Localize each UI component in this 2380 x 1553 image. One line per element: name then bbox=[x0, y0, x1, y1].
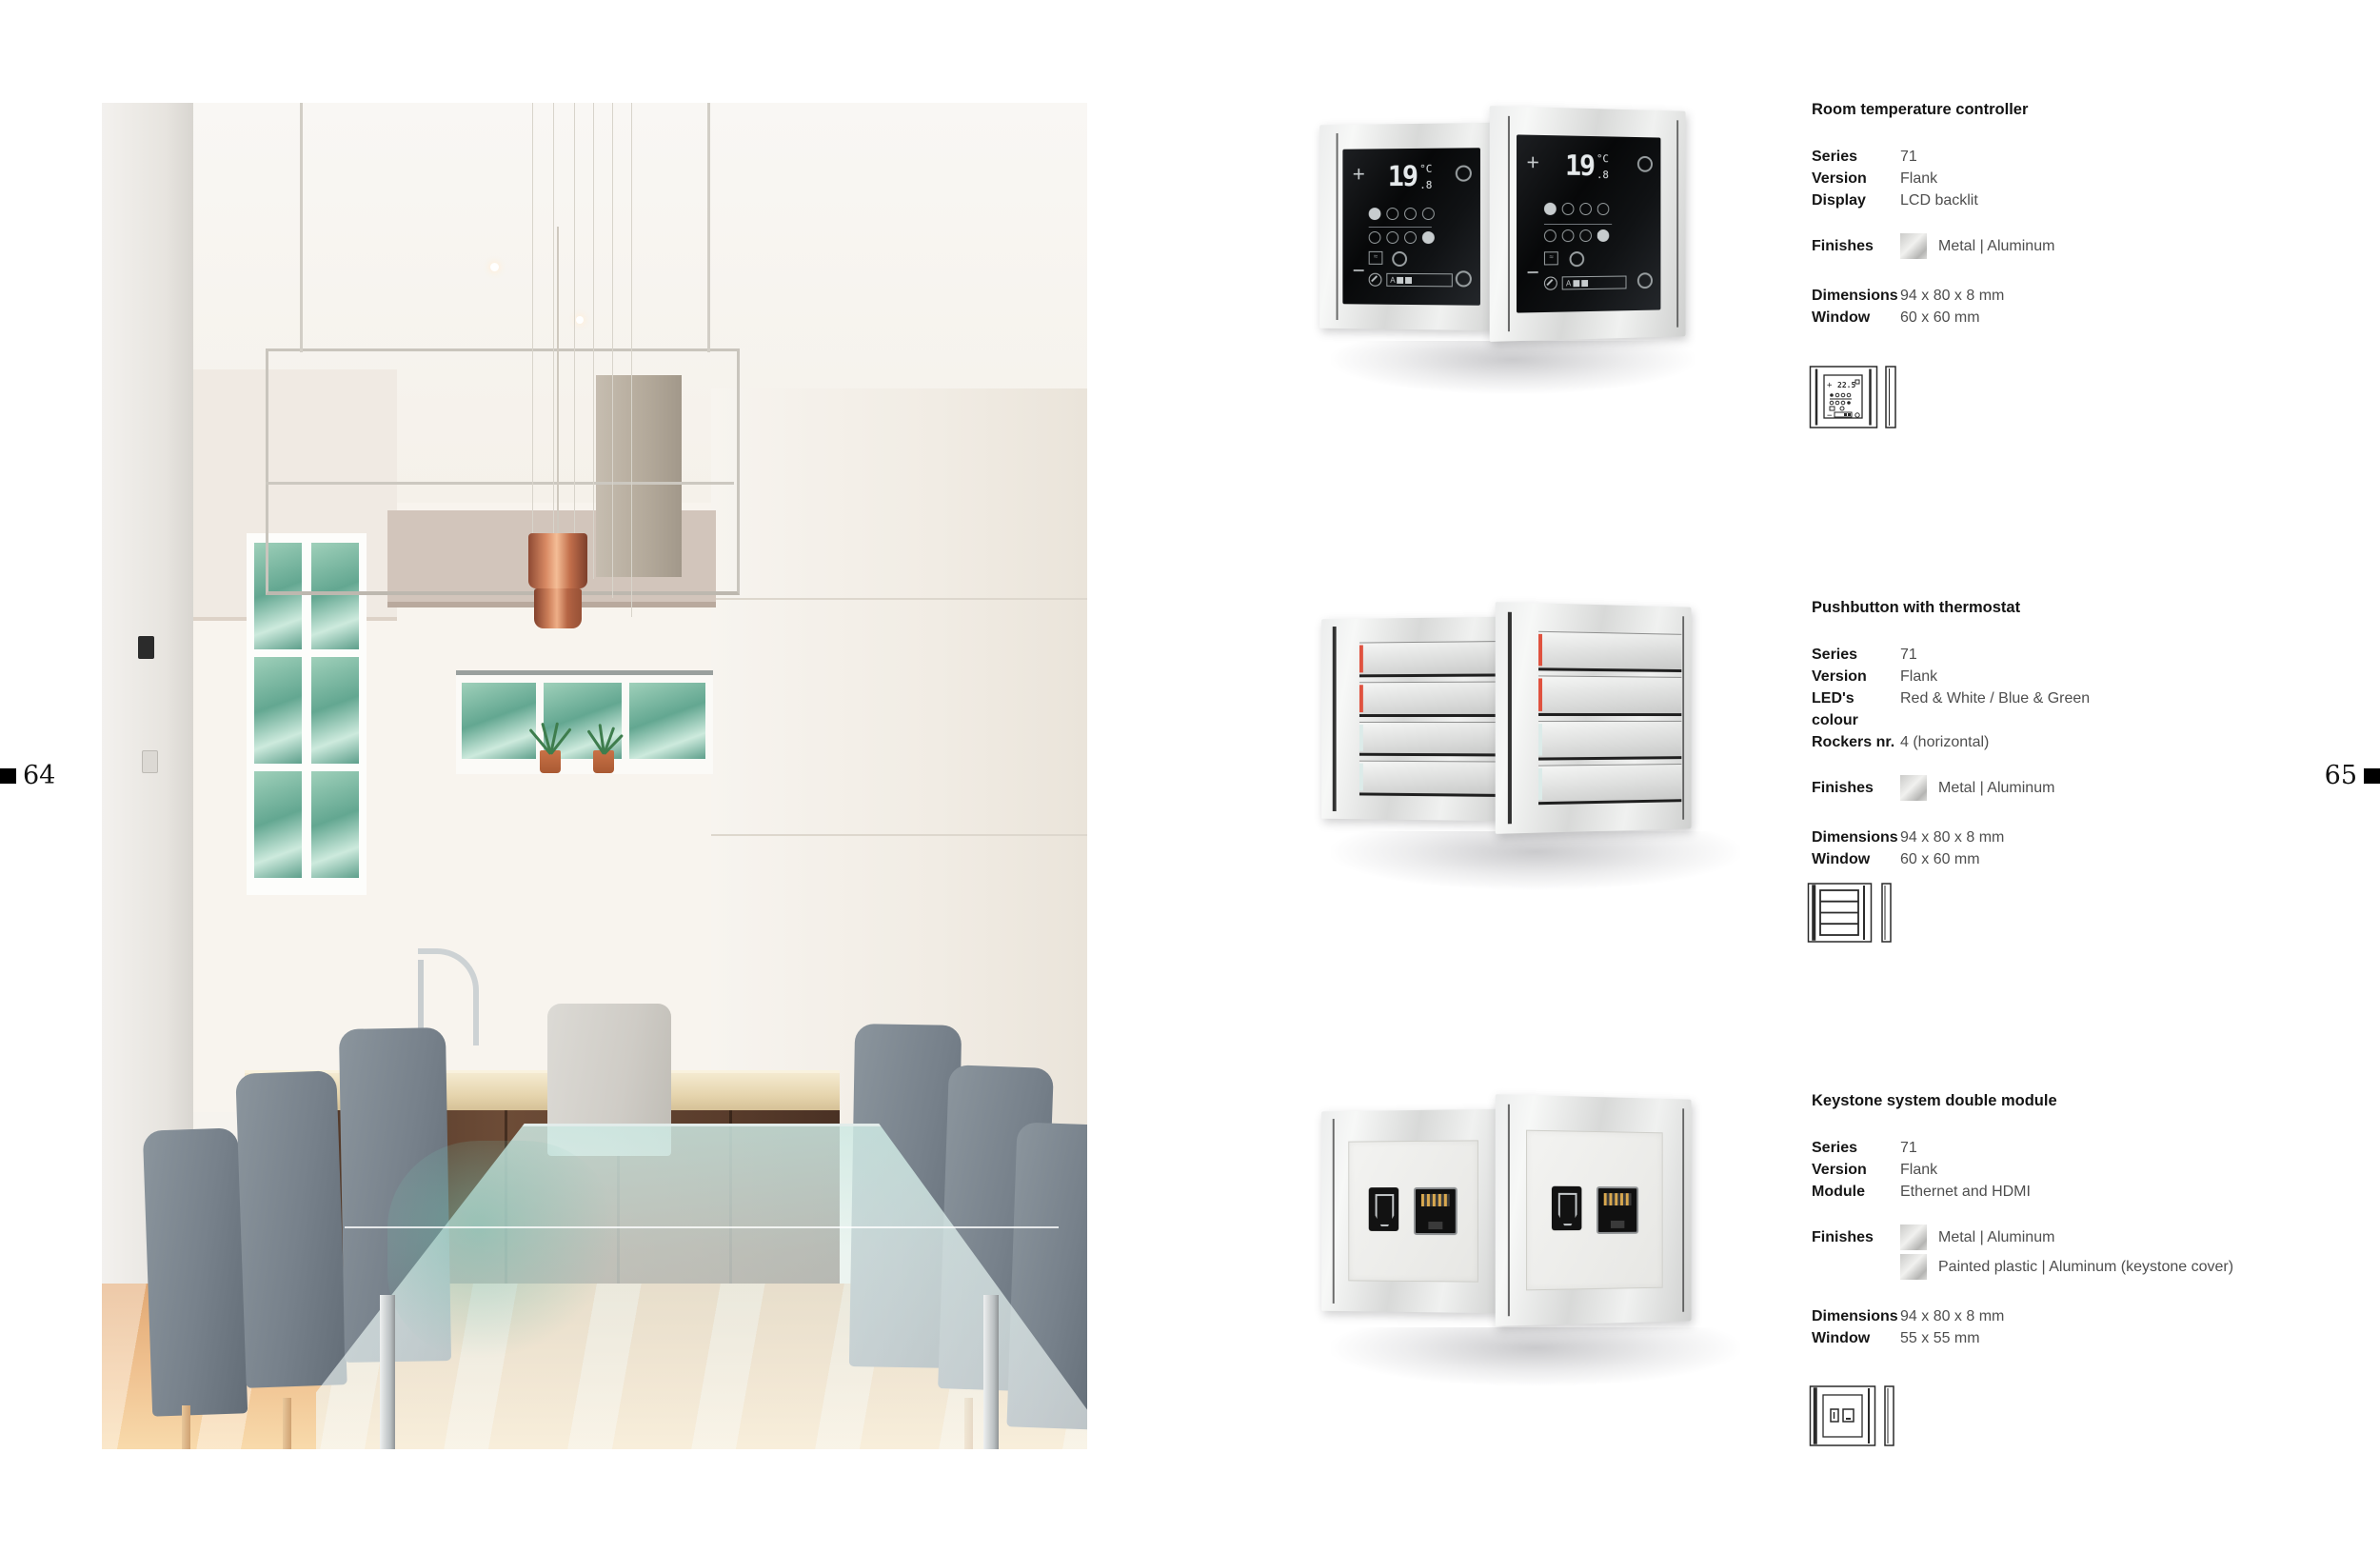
window-value: 60 x 60 mm bbox=[1900, 848, 1980, 870]
mode-dot bbox=[1422, 208, 1435, 220]
icon-heat-glyph bbox=[1830, 407, 1835, 410]
pushbutton-panel-left bbox=[1321, 617, 1506, 822]
icon-dot bbox=[1847, 401, 1851, 405]
table-leg bbox=[983, 1295, 999, 1449]
dining-chair bbox=[143, 1127, 248, 1416]
steel-frame-rail bbox=[266, 482, 734, 485]
led-stripe-red bbox=[1359, 685, 1363, 711]
spec-row: Window 60 x 60 mm bbox=[1812, 848, 2380, 870]
finish-row: Finishes Metal | Aluminum bbox=[1812, 1224, 2380, 1250]
spec-row: Window 55 x 55 mm bbox=[1812, 1327, 2380, 1349]
icon-dot bbox=[1830, 401, 1834, 405]
finish-name: Metal | Aluminum bbox=[1938, 235, 2054, 257]
ceiling-spotlight bbox=[490, 263, 499, 271]
spec-block-pushbutton: Pushbutton with thermostat Series 71 Ver… bbox=[1812, 597, 2380, 870]
fan-level-block bbox=[1581, 280, 1588, 287]
finish-row: Painted plastic | Aluminum (keystone cov… bbox=[1812, 1254, 2380, 1280]
window-pane bbox=[254, 771, 302, 878]
thermostat-front-view-icon: + 22.5 − bbox=[1809, 364, 1904, 430]
led-stripe-cool bbox=[1359, 764, 1363, 790]
mode-dots-row bbox=[1544, 203, 1609, 215]
kitchen-photo bbox=[102, 103, 1087, 1449]
temperature-unit: °C bbox=[1419, 162, 1432, 174]
port-group bbox=[1527, 1186, 1662, 1235]
spec-rows: Series 71 Version Flank Module Ethernet … bbox=[1812, 1137, 2380, 1203]
pushbutton-panel-right bbox=[1496, 602, 1692, 834]
mode-dot bbox=[1386, 231, 1398, 244]
mode-dot bbox=[1369, 208, 1381, 220]
flank-groove bbox=[1336, 133, 1338, 321]
rocker-group bbox=[1538, 630, 1682, 805]
rocker-button bbox=[1538, 764, 1682, 806]
metal-finish-swatch bbox=[1900, 775, 1927, 801]
mode-dot bbox=[1544, 229, 1557, 242]
fan-slider: A bbox=[1369, 273, 1453, 288]
ethernet-clip-notch bbox=[1428, 1222, 1442, 1229]
mode-dot bbox=[1562, 203, 1575, 215]
ethernet-pins bbox=[1604, 1193, 1632, 1205]
pendant-wire bbox=[553, 103, 554, 566]
spec-row: LED's colour Red & White / Blue & Green bbox=[1812, 687, 2380, 731]
spec-block-thermostat: Room temperature controller Series 71 Ve… bbox=[1812, 99, 2380, 329]
spec-value: LCD backlit bbox=[1900, 189, 1978, 211]
fan-level-bar: A bbox=[1386, 273, 1452, 288]
rocker-button bbox=[1359, 761, 1497, 797]
wall-switch-dark bbox=[138, 636, 154, 659]
display-separator bbox=[1369, 227, 1432, 228]
mode-dot bbox=[1597, 203, 1610, 215]
hdmi-port bbox=[1369, 1187, 1398, 1231]
spec-label: Version bbox=[1812, 1159, 1900, 1181]
hdmi-connector-outline bbox=[1558, 1193, 1577, 1225]
mode-dot bbox=[1404, 208, 1417, 220]
spec-block-keystone: Keystone system double module Series 71 … bbox=[1812, 1090, 2380, 1349]
thermostat-panel-right: + 19 °C .8 ≈ bbox=[1490, 106, 1686, 342]
window-label: Window bbox=[1812, 307, 1900, 329]
temperature-fraction: .8 bbox=[1419, 179, 1432, 191]
pushbutton-product-photo bbox=[1318, 603, 1765, 917]
port-group bbox=[1350, 1187, 1478, 1235]
icon-slider-block bbox=[1848, 413, 1851, 416]
flank-groove bbox=[1682, 616, 1684, 820]
clock-icon bbox=[1570, 251, 1585, 267]
rocker-button bbox=[1359, 721, 1497, 756]
mode-dots-row bbox=[1369, 208, 1435, 220]
potted-plant bbox=[585, 705, 624, 773]
flank-groove bbox=[1508, 1104, 1510, 1317]
fan-level-block bbox=[1405, 277, 1412, 284]
icon-dot bbox=[1847, 393, 1851, 397]
pendant-rod bbox=[557, 227, 559, 537]
spec-value: 4 (horizontal) bbox=[1900, 731, 1989, 753]
product-shadow bbox=[1331, 831, 1740, 890]
spec-label: Series bbox=[1812, 644, 1900, 666]
dimensions-section: Dimensions 94 x 80 x 8 mm Window 60 x 60… bbox=[1812, 285, 2380, 329]
dimensions-value: 94 x 80 x 8 mm bbox=[1900, 285, 2004, 307]
thermostat-glass-display: + 19 °C .8 ≈ bbox=[1517, 134, 1661, 312]
product-title: Keystone system double module bbox=[1812, 1090, 2380, 1112]
window-pane bbox=[311, 657, 359, 764]
spec-row: Module Ethernet and HDMI bbox=[1812, 1181, 2380, 1203]
fan-slider: A bbox=[1544, 276, 1627, 290]
spec-row: Dimensions 94 x 80 x 8 mm bbox=[1812, 285, 2380, 307]
icon-side-profile bbox=[1886, 367, 1895, 428]
product-title: Pushbutton with thermostat bbox=[1812, 597, 2380, 619]
spec-value: 71 bbox=[1900, 146, 1917, 168]
rocker-button bbox=[1538, 630, 1682, 672]
finishes-label: Finishes bbox=[1812, 777, 1900, 799]
product-shadow bbox=[1331, 1327, 1740, 1386]
painted-plastic-finish-swatch bbox=[1900, 1254, 1927, 1280]
frame-drop-rod bbox=[707, 103, 710, 352]
rocker-button bbox=[1538, 675, 1682, 715]
icon-clock-glyph bbox=[1840, 407, 1844, 410]
round-button bbox=[1637, 272, 1653, 289]
temperature-unit-frac: °C .8 bbox=[1597, 152, 1609, 181]
led-stripe-red bbox=[1538, 633, 1542, 666]
temperature-readout: 19 °C .8 bbox=[1565, 151, 1609, 181]
icon-dot bbox=[1841, 393, 1845, 397]
table-reflection bbox=[387, 1141, 616, 1360]
mode-dot bbox=[1386, 208, 1398, 220]
rocker-button bbox=[1538, 720, 1682, 760]
temperature-readout: 19 °C .8 bbox=[1388, 162, 1433, 190]
window-value: 55 x 55 mm bbox=[1900, 1327, 1980, 1349]
finish-name: Painted plastic | Aluminum (keystone cov… bbox=[1938, 1256, 2233, 1278]
mode-dot bbox=[1369, 231, 1381, 244]
hdmi-connector-outline bbox=[1376, 1194, 1395, 1226]
dimensions-label: Dimensions bbox=[1812, 826, 1900, 848]
spec-row: Version Flank bbox=[1812, 168, 2380, 189]
spec-row: Display LCD backlit bbox=[1812, 189, 2380, 211]
potted-plant bbox=[532, 697, 570, 773]
pendant-wire bbox=[612, 103, 613, 598]
suspended-steel-frame bbox=[266, 348, 740, 595]
thermostat-product-photo: + 19 °C .8 ≈ bbox=[1318, 105, 1717, 400]
window-value: 60 x 60 mm bbox=[1900, 307, 1980, 329]
led-stripe-red bbox=[1538, 678, 1542, 710]
spec-row: Dimensions 94 x 80 x 8 mm bbox=[1812, 1305, 2380, 1327]
copper-pendant-lamp-lower bbox=[534, 588, 582, 628]
keystone-product-photo bbox=[1318, 1095, 1765, 1414]
flank-groove bbox=[1508, 611, 1512, 825]
fan-icon bbox=[1544, 277, 1557, 290]
spec-row: Window 60 x 60 mm bbox=[1812, 307, 2380, 329]
spec-label: Version bbox=[1812, 666, 1900, 687]
ethernet-pins bbox=[1421, 1194, 1450, 1206]
fan-level-block bbox=[1398, 277, 1404, 284]
flank-groove bbox=[1682, 1108, 1684, 1312]
led-stripe-cool bbox=[1538, 768, 1542, 801]
clock-icon bbox=[1392, 251, 1407, 267]
icon-ethernet-glyph bbox=[1843, 1409, 1854, 1422]
window-pane bbox=[254, 657, 302, 764]
pushbutton-front-view-icon bbox=[1807, 882, 1897, 945]
finishes-section: Finishes Metal | Aluminum Painted plasti… bbox=[1812, 1224, 2380, 1280]
round-button bbox=[1637, 156, 1653, 172]
pendant-wire bbox=[532, 103, 533, 550]
mode-dot bbox=[1404, 231, 1417, 244]
frame-drop-rod bbox=[300, 103, 303, 352]
dimensions-section: Dimensions 94 x 80 x 8 mm Window 55 x 55… bbox=[1812, 1305, 2380, 1349]
spec-row: Version Flank bbox=[1812, 666, 2380, 687]
window-pane bbox=[462, 683, 536, 759]
ethernet-port bbox=[1414, 1187, 1458, 1235]
keystone-cover-plate bbox=[1526, 1129, 1663, 1290]
plus-button: + bbox=[1353, 161, 1365, 187]
thermostat-panel-left: + 19 °C .8 ≈ bbox=[1319, 123, 1504, 331]
auto-label: A bbox=[1390, 276, 1395, 285]
mode-dot bbox=[1562, 229, 1575, 242]
temperature-unit-frac: °C .8 bbox=[1419, 162, 1432, 190]
spec-value: 71 bbox=[1900, 1137, 1917, 1159]
pendant-wire bbox=[631, 103, 632, 617]
spec-label: Series bbox=[1812, 146, 1900, 168]
icon-side-profile bbox=[1885, 1386, 1894, 1445]
icon-flank-bar bbox=[1815, 1388, 1817, 1443]
window-pane bbox=[629, 683, 705, 759]
led-stripe-red bbox=[1359, 646, 1363, 672]
dimensions-section: Dimensions 94 x 80 x 8 mm Window 60 x 60… bbox=[1812, 826, 2380, 870]
spec-value: Flank bbox=[1900, 666, 1937, 687]
window-label: Window bbox=[1812, 1327, 1900, 1349]
round-button bbox=[1456, 270, 1472, 287]
flank-groove bbox=[1676, 120, 1678, 328]
flank-groove bbox=[1333, 627, 1337, 810]
finish-row: Finishes Metal | Aluminum bbox=[1812, 233, 2380, 259]
spec-label: Module bbox=[1812, 1181, 1900, 1203]
mode-dots-row bbox=[1544, 229, 1609, 241]
icon-plus: + bbox=[1827, 381, 1833, 390]
heating-icon: ≈ bbox=[1544, 252, 1558, 266]
temperature-fraction: .8 bbox=[1597, 169, 1609, 181]
spec-value: 71 bbox=[1900, 644, 1917, 666]
finish-name: Metal | Aluminum bbox=[1938, 1226, 2054, 1248]
keystone-cover-plate bbox=[1349, 1140, 1478, 1283]
wall-switch-light bbox=[142, 750, 158, 773]
spec-label: LED's colour bbox=[1812, 687, 1900, 731]
product-shadow bbox=[1331, 341, 1695, 394]
display-separator bbox=[1544, 224, 1611, 225]
window-pane bbox=[311, 771, 359, 878]
ethernet-port bbox=[1597, 1186, 1638, 1234]
spec-row: Dimensions 94 x 80 x 8 mm bbox=[1812, 826, 2380, 848]
backsplash-window bbox=[456, 670, 713, 774]
icon-temp-readout: 22.5 bbox=[1837, 381, 1855, 389]
window-label: Window bbox=[1812, 848, 1900, 870]
cabinet-seam bbox=[711, 598, 1087, 600]
fan-level-block bbox=[1573, 280, 1579, 287]
spec-rows: Series 71 Version Flank Display LCD back… bbox=[1812, 146, 2380, 211]
dimensions-value: 94 x 80 x 8 mm bbox=[1900, 826, 2004, 848]
minus-button: − bbox=[1527, 259, 1539, 286]
spec-rows: Series 71 Version Flank LED's colour Red… bbox=[1812, 644, 2380, 753]
plus-button: + bbox=[1527, 149, 1539, 176]
page-number-left: 64 bbox=[0, 761, 55, 790]
keystone-panel-right bbox=[1496, 1094, 1692, 1326]
dimensions-label: Dimensions bbox=[1812, 1305, 1900, 1327]
spec-row: Rockers nr. 4 (horizontal) bbox=[1812, 731, 2380, 753]
mode-dot bbox=[1580, 229, 1593, 242]
ceiling-spotlight bbox=[576, 316, 584, 324]
table-glass-seam bbox=[345, 1226, 1059, 1228]
keystone-panel-left bbox=[1321, 1109, 1506, 1314]
spec-label: Rockers nr. bbox=[1812, 731, 1900, 753]
chair-leg bbox=[283, 1398, 291, 1449]
dimensions-label: Dimensions bbox=[1812, 285, 1900, 307]
minus-button: − bbox=[1353, 258, 1365, 284]
icon-side-profile bbox=[1882, 884, 1891, 942]
table-leg bbox=[380, 1295, 395, 1449]
spec-row: Series 71 bbox=[1812, 146, 2380, 168]
page-marker-square bbox=[0, 768, 16, 784]
metal-finish-swatch bbox=[1900, 1224, 1927, 1250]
fan-level-bar: A bbox=[1562, 276, 1627, 290]
flank-groove bbox=[1508, 116, 1510, 332]
flank-groove bbox=[1333, 1119, 1335, 1303]
icon-square-button bbox=[1855, 380, 1859, 384]
mode-dot bbox=[1544, 203, 1557, 215]
spec-value: Ethernet and HDMI bbox=[1900, 1181, 2031, 1203]
rocker-group bbox=[1359, 642, 1497, 797]
chair-leg bbox=[182, 1405, 190, 1449]
hdmi-port bbox=[1552, 1186, 1581, 1230]
temperature-value: 19 bbox=[1565, 151, 1594, 179]
rocker-button bbox=[1359, 682, 1497, 717]
finish-name: Metal | Aluminum bbox=[1938, 777, 2054, 799]
copper-pendant-lamp bbox=[528, 533, 587, 588]
page-number: 64 bbox=[23, 761, 55, 790]
mode-dot bbox=[1422, 231, 1435, 244]
spec-value: Flank bbox=[1900, 168, 1937, 189]
spec-value: Flank bbox=[1900, 1159, 1937, 1181]
heating-icon: ≈ bbox=[1369, 251, 1383, 265]
spec-value: Red & White / Blue & Green bbox=[1900, 687, 2090, 731]
spec-row: Series 71 bbox=[1812, 1137, 2380, 1159]
mode-dot bbox=[1597, 229, 1610, 241]
icon-slider-block bbox=[1844, 413, 1847, 416]
finishes-label: Finishes bbox=[1812, 235, 1900, 257]
fan-icon bbox=[1369, 273, 1382, 287]
icon-flank-bar bbox=[1813, 886, 1815, 940]
temperature-value: 19 bbox=[1388, 163, 1418, 190]
pendant-wire bbox=[593, 103, 594, 579]
product-title: Room temperature controller bbox=[1812, 99, 2380, 121]
icon-minus: − bbox=[1827, 411, 1833, 421]
keystone-front-view-icon bbox=[1809, 1384, 1899, 1449]
mode-dots-row bbox=[1369, 231, 1435, 244]
dining-chair bbox=[235, 1070, 347, 1387]
ethernet-clip-notch bbox=[1611, 1221, 1624, 1228]
round-button bbox=[1456, 165, 1472, 181]
finish-row: Finishes Metal | Aluminum bbox=[1812, 775, 2380, 801]
thermostat-glass-display: + 19 °C .8 ≈ bbox=[1343, 148, 1480, 306]
cabinet-seam bbox=[711, 834, 1087, 836]
icon-dot bbox=[1835, 401, 1839, 405]
auto-label: A bbox=[1566, 279, 1571, 288]
spec-row: Version Flank bbox=[1812, 1159, 2380, 1181]
spec-label: Series bbox=[1812, 1137, 1900, 1159]
pendant-wire bbox=[574, 103, 575, 550]
spec-label: Display bbox=[1812, 189, 1900, 211]
icon-dot bbox=[1830, 393, 1834, 397]
temperature-unit: °C bbox=[1597, 152, 1609, 165]
metal-finish-swatch bbox=[1900, 233, 1927, 259]
finishes-section: Finishes Metal | Aluminum bbox=[1812, 775, 2380, 801]
rocker-button bbox=[1359, 642, 1497, 678]
led-stripe-cool bbox=[1359, 724, 1363, 750]
led-stripe-cool bbox=[1538, 724, 1542, 756]
finishes-label: Finishes bbox=[1812, 1226, 1900, 1248]
icon-dot bbox=[1835, 393, 1839, 397]
finishes-section: Finishes Metal | Aluminum bbox=[1812, 233, 2380, 259]
icon-round-button bbox=[1855, 413, 1859, 417]
icon-dot bbox=[1841, 401, 1845, 405]
spec-label: Version bbox=[1812, 168, 1900, 189]
mode-dot bbox=[1580, 203, 1593, 215]
dimensions-value: 94 x 80 x 8 mm bbox=[1900, 1305, 2004, 1327]
spec-row: Series 71 bbox=[1812, 644, 2380, 666]
